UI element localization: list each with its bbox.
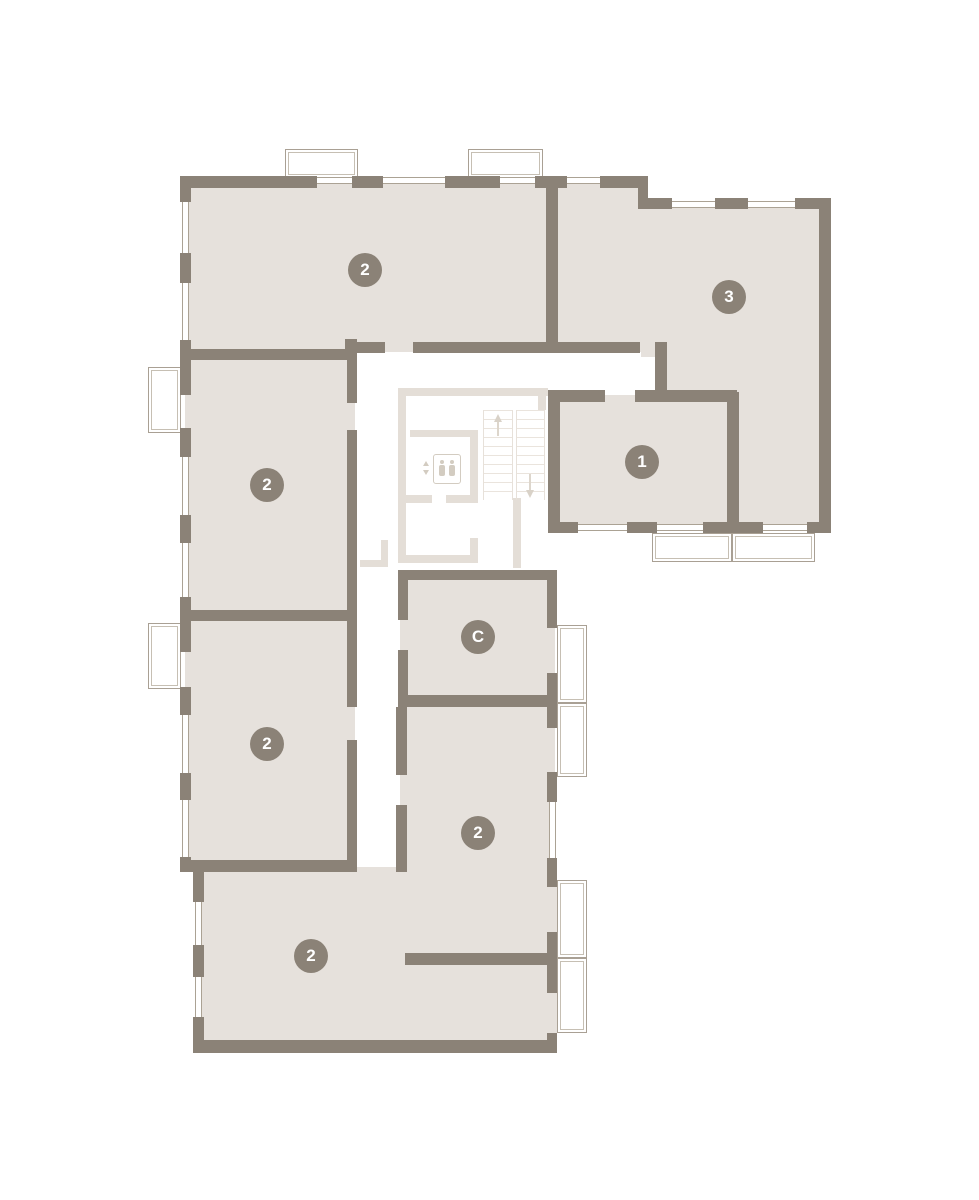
- wall-segment: [396, 805, 407, 872]
- wall-segment: [398, 570, 557, 580]
- unit-badge-label: 2: [306, 946, 315, 966]
- core-wall: [513, 498, 521, 568]
- window: [578, 524, 627, 531]
- core-wall: [398, 495, 432, 503]
- unit-badge-2-bottom-center[interactable]: 2: [461, 816, 495, 850]
- wall-segment: [180, 515, 191, 543]
- balcony: [557, 625, 587, 703]
- core-wall: [381, 540, 388, 567]
- balcony: [468, 149, 543, 178]
- room-top-right-3[interactable]: [737, 390, 828, 530]
- unit-badge-label: 1: [637, 452, 646, 472]
- wall-segment: [546, 176, 558, 353]
- wall-segment: [405, 953, 557, 965]
- person-icon: [439, 465, 445, 476]
- window: [657, 524, 703, 531]
- staircase: [483, 410, 545, 500]
- person-icon: [450, 460, 454, 464]
- wall-segment: [352, 176, 383, 188]
- elevator-call-down-icon: [423, 470, 429, 475]
- wall-segment: [627, 522, 657, 533]
- wall-segment: [548, 390, 560, 533]
- unit-badge-2-lower-left[interactable]: 2: [250, 727, 284, 761]
- window: [182, 457, 189, 515]
- wall-segment: [180, 610, 357, 621]
- window: [763, 524, 807, 531]
- window: [182, 283, 189, 340]
- wall-segment: [547, 858, 557, 887]
- window: [182, 800, 189, 857]
- balcony: [732, 533, 815, 562]
- wall-segment: [180, 860, 357, 872]
- core-wall: [470, 430, 478, 497]
- wall-segment: [396, 707, 407, 775]
- wall-segment: [819, 198, 831, 533]
- wall-segment: [180, 253, 191, 283]
- unit-badge-label: 2: [360, 260, 369, 280]
- wall-segment: [638, 198, 672, 209]
- unit-badge-label: 2: [262, 734, 271, 754]
- unit-badge-label: C: [472, 627, 484, 647]
- wall-segment: [715, 198, 748, 209]
- wall-segment: [347, 740, 357, 862]
- window: [195, 977, 202, 1017]
- balcony: [557, 880, 587, 958]
- window: [549, 802, 556, 858]
- window: [317, 177, 352, 184]
- wall-segment: [180, 687, 191, 715]
- stairs-up-arrow-icon: [494, 414, 502, 422]
- unit-badge-c-studio[interactable]: C: [461, 620, 495, 654]
- elevator-call-up-icon: [423, 461, 429, 466]
- wall-segment: [193, 872, 204, 902]
- wall-segment: [180, 176, 317, 188]
- balcony: [285, 149, 358, 178]
- unit-badge-1-center[interactable]: 1: [625, 445, 659, 479]
- wall-segment: [180, 176, 191, 202]
- stairs-down-arrow-icon: [529, 474, 531, 490]
- wall-segment: [180, 349, 357, 360]
- balcony: [148, 367, 181, 433]
- balcony: [652, 533, 732, 562]
- balcony: [148, 623, 181, 689]
- unit-badge-3-top-right[interactable]: 3: [712, 280, 746, 314]
- window: [500, 177, 535, 184]
- person-icon: [449, 465, 455, 476]
- window: [182, 715, 189, 773]
- core-wall: [410, 430, 478, 437]
- balcony: [557, 958, 587, 1033]
- elevator-icon: [433, 454, 461, 484]
- wall-segment: [727, 392, 739, 533]
- floor-plan: 2 3 1 2 C 2 2 2: [0, 0, 979, 1200]
- window: [182, 202, 189, 253]
- wall-segment: [193, 945, 204, 977]
- window: [383, 177, 445, 184]
- wall-segment: [547, 570, 557, 628]
- wall-segment: [445, 176, 500, 188]
- window: [567, 177, 600, 184]
- unit-badge-label: 2: [473, 823, 482, 843]
- unit-badge-label: 2: [262, 475, 271, 495]
- core-wall: [398, 555, 478, 563]
- wall-segment: [347, 614, 357, 707]
- stairs-up-arrow-icon: [497, 420, 499, 436]
- wall-segment: [180, 428, 191, 457]
- wall-segment: [807, 522, 831, 533]
- wall-segment: [703, 522, 763, 533]
- person-icon: [440, 460, 444, 464]
- core-wall: [538, 388, 546, 410]
- wall-segment: [548, 522, 578, 533]
- unit-badge-2-top-left[interactable]: 2: [348, 253, 382, 287]
- wall-segment: [398, 570, 408, 620]
- unit-badge-label: 3: [724, 287, 733, 307]
- wall-segment: [180, 621, 191, 652]
- stairs-down-arrow-icon: [526, 490, 534, 498]
- wall-segment: [398, 695, 557, 707]
- core-wall: [446, 495, 478, 503]
- wall-segment: [547, 772, 557, 802]
- room-top-right-3[interactable]: [665, 345, 828, 395]
- core-wall: [398, 396, 406, 563]
- balcony: [557, 703, 587, 777]
- window: [195, 902, 202, 945]
- window: [748, 201, 795, 208]
- window: [182, 543, 189, 597]
- wall-segment: [180, 773, 191, 800]
- unit-badge-2-mid-left[interactable]: 2: [250, 468, 284, 502]
- room-top-right-3[interactable]: [553, 184, 648, 352]
- wall-segment: [635, 390, 737, 402]
- unit-badge-2-bottom[interactable]: 2: [294, 939, 328, 973]
- core-wall: [470, 538, 478, 563]
- wall-segment: [193, 1040, 557, 1053]
- wall-segment: [547, 1033, 557, 1048]
- wall-segment: [413, 342, 640, 353]
- window: [672, 201, 715, 208]
- wall-segment: [347, 349, 357, 403]
- core-wall: [398, 388, 548, 396]
- wall-segment: [347, 430, 357, 614]
